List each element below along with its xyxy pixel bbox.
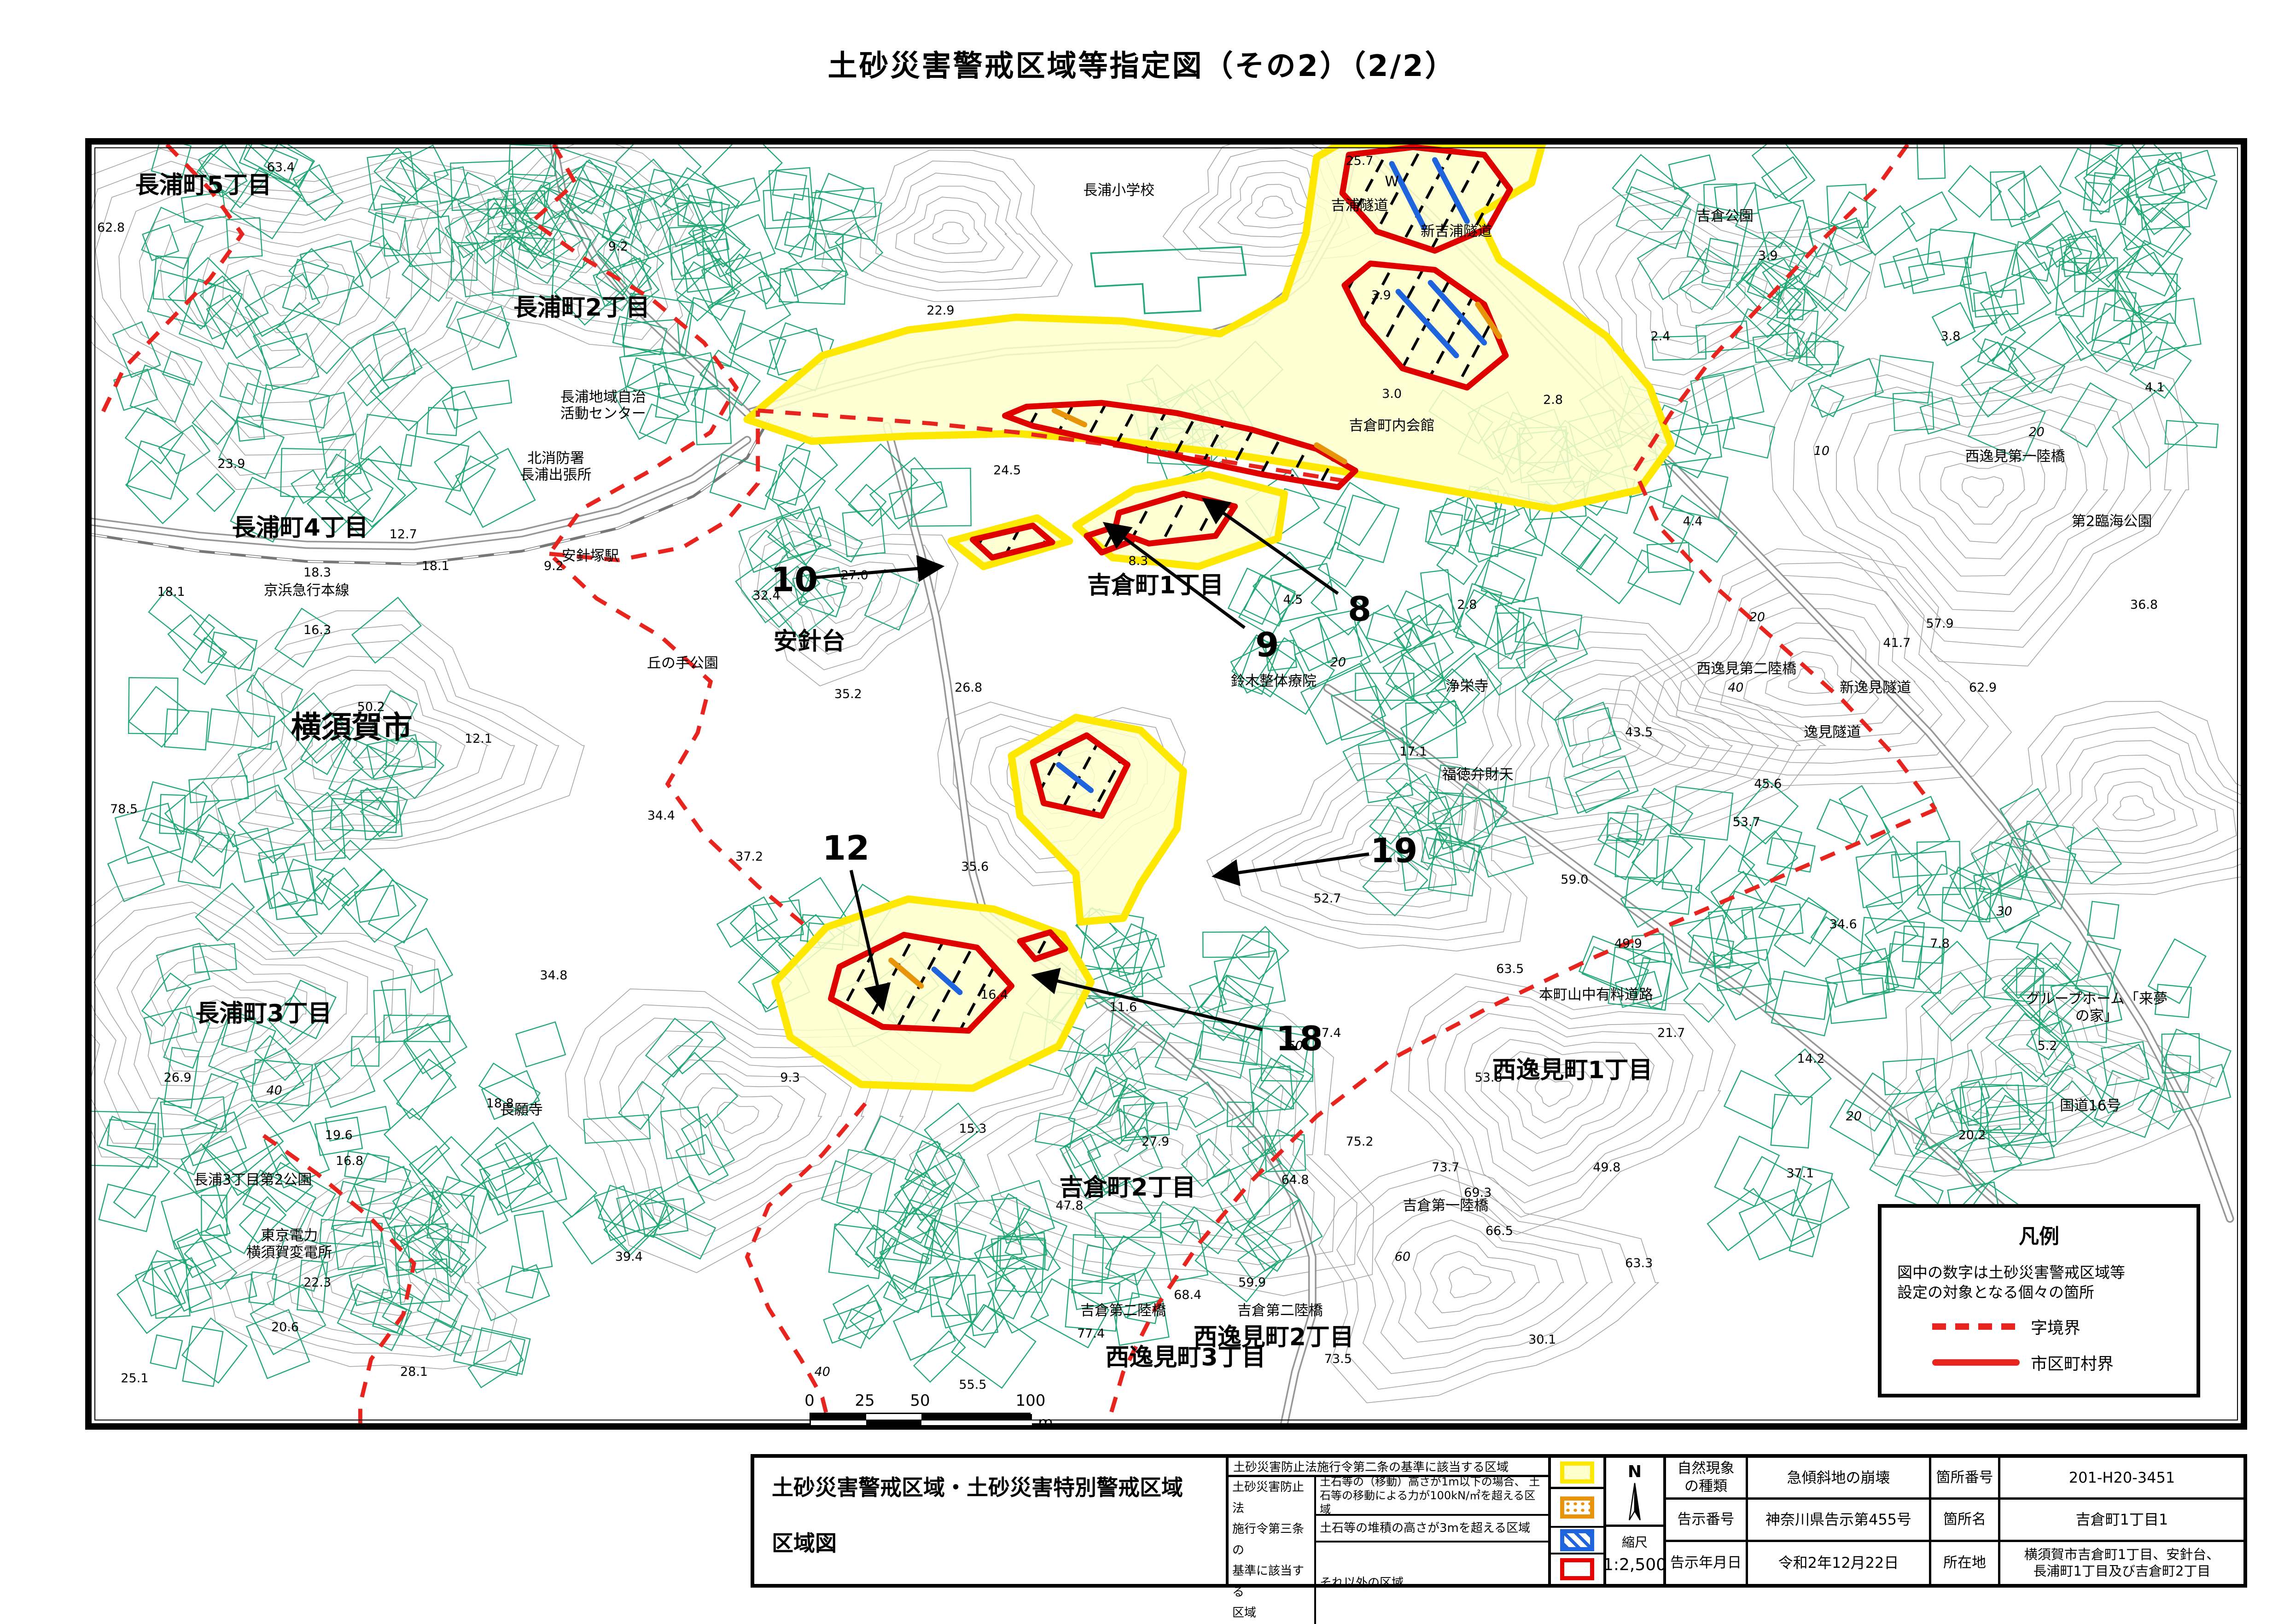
elevation-label: 26.8 [955, 681, 982, 695]
site-name-value: 吉倉町1丁目1 [2000, 1500, 2243, 1542]
elevation-label: 45.6 [1754, 777, 1782, 792]
notice-date-label: 告示年月日 [1666, 1542, 1748, 1584]
elevation-label: 20.6 [271, 1320, 299, 1335]
legend-item-label: 字境界 [2031, 1315, 2080, 1339]
zone-criteria-legend: 土砂災害防止法施行令第二条の基準に該当する区域 土砂災害防止法 施行令第三条の … [1229, 1458, 1551, 1584]
solid-line-sample [1932, 1359, 2020, 1366]
place-label: 京浜急行本線 [264, 582, 350, 600]
elevation-label: 14.2 [1797, 1052, 1825, 1066]
elevation-label: 62.9 [1969, 681, 1997, 695]
elevation-label: 7.8 [1930, 937, 1950, 951]
elevation-label: 22.9 [926, 303, 954, 318]
criteria-row-warning: 土砂災害防止法施行令第二条の基準に該当する区域 [1229, 1458, 1548, 1477]
elevation-label: 26.9 [164, 1071, 192, 1085]
designation-info-grid: 自然現象 の種類 急傾斜地の崩壊 箇所番号 201-H20-3451 告示番号 … [1666, 1458, 2243, 1584]
elevation-label: 8.3 [1128, 554, 1148, 569]
phenomenon-label: 自然現象 の種類 [1666, 1458, 1748, 1500]
elevation-label: 3.9 [1758, 249, 1778, 263]
elevation-label: 9.2 [544, 559, 564, 574]
elevation-label: 18.3 [303, 565, 331, 580]
contour-value-label: 20 [1749, 611, 1765, 625]
elevation-label: 39.4 [615, 1250, 643, 1264]
legend-note: 図中の数字は土砂災害警戒区域等 設定の対象となる個々の箇所 [1897, 1263, 2181, 1303]
place-label: 福徳弁財天 [1442, 767, 1514, 784]
elevation-label: 47.8 [1055, 1199, 1083, 1213]
elevation-label: 27.9 [1142, 1135, 1169, 1149]
place-label: W [1385, 173, 1399, 190]
elevation-label: 53.8 [1474, 1071, 1502, 1085]
elevation-label: 9.3 [780, 1071, 800, 1085]
place-label: 鈴木整体療院 [1231, 673, 1317, 690]
place-label: 長浦町2丁目 [513, 294, 650, 322]
legend-item-municipal-boundary: 市区町村界 [1932, 1350, 2197, 1374]
place-label: 逸見隧道 [1804, 724, 1861, 741]
legend-box: 凡例 図中の数字は土砂災害警戒区域等 設定の対象となる個々の箇所 字境界 市区町… [1878, 1204, 2200, 1397]
document-title-line1: 土砂災害警戒区域・土砂災害特別警戒区域 [772, 1470, 1226, 1502]
elevation-label: 50.2 [357, 700, 385, 715]
place-label: 西逸見第二陸橋 [1696, 660, 1796, 677]
elevation-label: 5.2 [2037, 1039, 2057, 1054]
elevation-label: 34.8 [540, 968, 567, 983]
place-label: 吉倉町2丁目 [1059, 1174, 1195, 1202]
elevation-label: 21.7 [1657, 1026, 1685, 1041]
place-label: 長浦町3丁目 [195, 1000, 332, 1028]
elevation-label: 2.8 [1543, 393, 1563, 407]
elevation-label: 3.9 [1371, 288, 1391, 303]
elevation-label: 49.8 [1593, 1160, 1620, 1175]
criteria-group-label: 土砂災害防止法 施行令第三条の 基準に該当する 区域 [1229, 1477, 1316, 1624]
elevation-label: 25.1 [121, 1371, 148, 1386]
elevation-label: 35.2 [834, 687, 862, 702]
site-name-label: 箇所名 [1931, 1500, 2000, 1542]
elevation-label: 12.7 [390, 527, 417, 542]
warning-zone-swatch [1560, 1461, 1594, 1484]
elevation-label: 24.5 [993, 463, 1021, 478]
contour-value-label: 60 [1395, 1250, 1410, 1264]
debris-force-zone-swatch [1560, 1496, 1594, 1519]
contour-value-label: 30 [1996, 904, 2012, 919]
place-label: 丘の手公園 [647, 655, 718, 672]
elevation-label: 53.7 [1733, 815, 1760, 830]
elevation-label: 66.5 [1486, 1224, 1513, 1239]
notice-no-value: 神奈川県告示第455号 [1748, 1500, 1931, 1542]
elevation-label: 23.9 [217, 457, 245, 471]
sheet: { "page": { "title": "土砂災害警戒区域等指定図（その2）（… [0, 0, 2284, 1616]
location-label: 所在地 [1931, 1542, 2000, 1584]
place-label: 吉倉町内会館 [1349, 418, 1435, 435]
document-title-cell: 土砂災害警戒区域・土砂災害特別警戒区域 区域図 [754, 1458, 1229, 1584]
scale-word: 縮尺 [1622, 1532, 1648, 1551]
elevation-label: 4.4 [1683, 514, 1702, 529]
dashed-line-sample [1932, 1323, 2020, 1330]
place-label: 吉倉第二陸橋 [1237, 1302, 1323, 1319]
site-no-value: 201-H20-3451 [2000, 1458, 2243, 1500]
deposit-zone-swatch [1560, 1529, 1594, 1551]
elevation-label: 78.5 [110, 802, 138, 817]
place-label: 西逸見町1丁目 [1492, 1056, 1652, 1084]
elevation-label: 3.0 [1382, 387, 1402, 402]
contour-value-label: 40 [267, 1083, 282, 1098]
elevation-label: 32.4 [752, 588, 780, 603]
elevation-label: 34.6 [1830, 917, 1857, 932]
place-label: グループホーム「来夢の家」 [2025, 991, 2169, 1024]
elevation-label: 18.8 [486, 1096, 514, 1111]
elevation-label: 75.2 [1346, 1135, 1373, 1149]
page-title: 土砂災害警戒区域等指定図（その2）（2/2） [0, 42, 2284, 85]
elevation-label: 28.1 [400, 1365, 428, 1380]
elevation-label: 59.9 [1238, 1275, 1266, 1290]
elevation-label: 11.6 [1109, 1001, 1137, 1015]
place-label: 長浦町4丁目 [232, 514, 368, 542]
place-label: 吉倉公園 [1696, 208, 1754, 225]
place-label: 北消防署 長浦出張所 [520, 450, 592, 483]
criteria-row-deposit: 土石等の堆積の高さが3mを超える区域 [1316, 1516, 1548, 1543]
elevation-label: 49.9 [1614, 937, 1642, 951]
elevation-label: 37.2 [735, 850, 763, 864]
place-label: 長浦地域自治 活動センター [560, 389, 646, 422]
place-label: 吉浦隧道 [1331, 198, 1388, 215]
document-title-line2: 区域図 [772, 1525, 1226, 1557]
elevation-label: 73.7 [1432, 1160, 1459, 1175]
elevation-label: 69.3 [1464, 1186, 1492, 1200]
elevation-label: 15.3 [959, 1122, 986, 1136]
elevation-label: 55.5 [959, 1378, 986, 1392]
elevation-label: 35.6 [961, 860, 989, 874]
elevation-label: 63.4 [267, 160, 295, 175]
criteria-row-movement: 土石等の（移動）高さが1m以下の場合、 土石等の移動による力が100kN/㎡を超… [1316, 1477, 1548, 1516]
location-value: 横須賀市吉倉町1丁目、安針台、 長浦町1丁目及び吉倉町2丁目 [2000, 1542, 2243, 1584]
contour-value-label: 40 [815, 1365, 830, 1380]
elevation-label: 34.4 [647, 809, 675, 823]
place-label: 長浦小学校 [1083, 182, 1154, 199]
contour-value-label: 20 [1330, 655, 1346, 670]
place-label: 長浦3丁目第2公園 [194, 1172, 312, 1189]
elevation-label: 77.4 [1077, 1327, 1105, 1341]
elevation-label: 25.7 [1346, 154, 1373, 169]
elevation-label: 20.2 [1958, 1128, 1986, 1143]
elevation-label: 36.8 [2130, 598, 2158, 612]
elevation-label: 37.1 [1786, 1167, 1814, 1182]
place-label: 浄栄寺 [1445, 678, 1488, 695]
elevation-label: 12.1 [465, 732, 492, 746]
elevation-label: 57.9 [1926, 617, 1954, 631]
place-label: 第2臨海公園 [2072, 513, 2152, 530]
legend-title: 凡例 [1882, 1220, 2197, 1249]
contour-value-label: 20 [1846, 1109, 1862, 1124]
notice-date-value: 令和2年12月22日 [1748, 1542, 1931, 1584]
elevation-label: 73.5 [1324, 1352, 1352, 1367]
footer-table: 土砂災害警戒区域・土砂災害特別警戒区域 区域図 土砂災害防止法施行令第二条の基準… [751, 1454, 2247, 1588]
other-special-zone-swatch [1560, 1558, 1594, 1580]
map-frame: 8910121819 長浦町5丁目長浦町2丁目長浦町4丁目長浦町3丁目横須賀市安… [85, 138, 2247, 1430]
site-no-label: 箇所番号 [1931, 1458, 2000, 1500]
contour-value-label: 20 [2028, 425, 2044, 440]
elevation-label: 18.1 [422, 559, 449, 574]
place-label: 吉倉町1丁目 [1087, 571, 1224, 600]
elevation-label: 43.5 [1625, 725, 1653, 740]
elevation-label: 63.3 [1625, 1256, 1653, 1271]
elevation-label: 4.5 [1283, 593, 1303, 607]
north-label: N [1628, 1462, 1642, 1481]
elevation-label: 68.4 [1174, 1288, 1201, 1303]
place-label: 国道16号 [2060, 1098, 2121, 1115]
elevation-label: 19.6 [325, 1128, 353, 1143]
contour-value-label: 40 [1728, 681, 1743, 695]
elevation-label: 27.0 [841, 568, 868, 583]
north-and-scale-cell: N 縮尺 1:2,500 [1606, 1458, 1666, 1584]
criteria-row-other: それ以外の区域 [1316, 1543, 1548, 1624]
contour-value-label: 10 [1814, 444, 1830, 459]
place-label: 西逸見第一陸橋 [1965, 448, 2065, 465]
place-label: 安針台 [774, 628, 845, 656]
zone-swatches [1551, 1458, 1606, 1584]
elevation-label: 62.8 [97, 221, 125, 235]
elevation-label: 3.8 [1940, 329, 1960, 344]
elevation-label: 16.3 [303, 623, 331, 638]
place-label: 本町山中有料道路 [1539, 986, 1653, 1003]
elevation-label: 22.3 [303, 1275, 331, 1290]
elevation-label: 30.1 [1528, 1333, 1556, 1348]
scale-value: 1:2,500 [1603, 1555, 1666, 1574]
place-label: 長浦町5丁目 [135, 171, 272, 199]
elevation-label: 57.4 [1313, 1026, 1341, 1041]
place-label: 安針塚駅 [562, 548, 619, 565]
elevation-label: 63.5 [1496, 962, 1524, 977]
legend-item-label: 市区町村界 [2031, 1350, 2114, 1374]
place-label: 西逸見町3丁目 [1105, 1344, 1265, 1372]
elevation-label: 52.7 [1313, 891, 1341, 906]
elevation-label: 64.8 [1281, 1173, 1309, 1187]
legend-item-aza-boundary: 字境界 [1932, 1315, 2197, 1339]
place-label: 横須賀市 [291, 710, 413, 745]
elevation-label: 16.8 [336, 1154, 363, 1169]
elevation-label: 2.4 [1650, 329, 1670, 344]
elevation-label: 41.7 [1883, 636, 1911, 651]
elevation-label: 9.2 [608, 239, 628, 254]
contour-value-label: 50 [1287, 1039, 1303, 1054]
notice-no-label: 告示番号 [1666, 1500, 1748, 1542]
elevation-label: 2.8 [1457, 598, 1477, 612]
place-label: 新逸見隧道 [1840, 680, 1911, 697]
elevation-label: 18.1 [157, 585, 185, 600]
elevation-label: 16.4 [980, 988, 1008, 1002]
place-label: 東京電力 横須賀変電所 [246, 1228, 332, 1261]
elevation-label: 17.1 [1399, 745, 1427, 759]
elevation-label: 59.0 [1561, 873, 1588, 887]
place-label: 新吉浦隧道 [1421, 223, 1492, 240]
elevation-label: 4.1 [2145, 380, 2165, 395]
phenomenon-value: 急傾斜地の崩壊 [1748, 1458, 1931, 1500]
north-arrow-icon [1625, 1481, 1645, 1525]
place-label: 吉倉第二陸橋 [1080, 1302, 1166, 1319]
